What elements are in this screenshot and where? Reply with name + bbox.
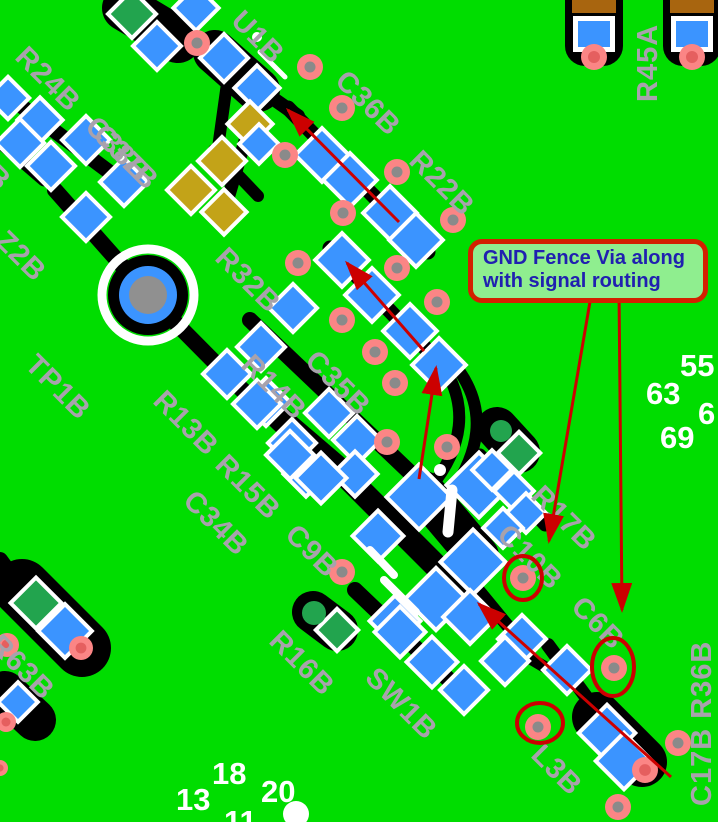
- red-via-highlight-circle: [592, 638, 634, 696]
- red-leader-arrow: [347, 263, 424, 351]
- callout-text-line1: GND Fence Via along: [483, 247, 693, 270]
- red-arrows-and-circles: [288, 110, 671, 777]
- gnd-fence-callout: GND Fence Via along with signal routing: [468, 239, 708, 303]
- red-leader-arrow: [288, 110, 399, 222]
- red-leader-arrow: [619, 290, 622, 610]
- red-via-highlight-circle: [517, 703, 563, 743]
- red-annotation-layer: [0, 0, 718, 822]
- callout-text-line2: with signal routing: [483, 270, 693, 293]
- red-via-highlight-circle: [504, 556, 542, 600]
- red-leader-arrow: [479, 604, 671, 777]
- red-leader-arrow: [419, 368, 436, 479]
- pcb-layout-view: R24B C38B C37B 3B Z2B TP1B R13B R32B R14…: [0, 0, 718, 822]
- red-leader-arrow: [549, 290, 592, 541]
